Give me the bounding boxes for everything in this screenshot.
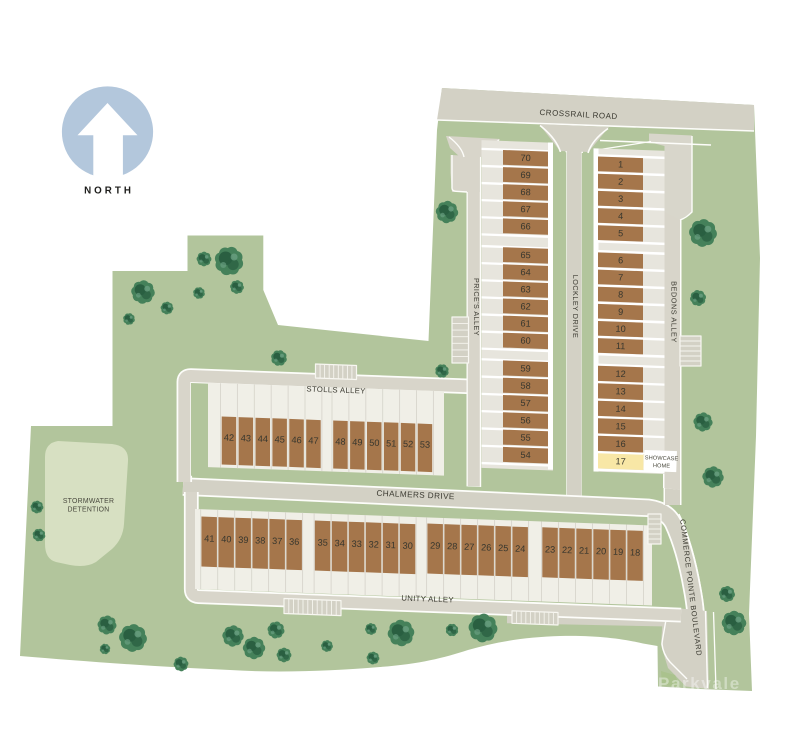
svg-text:25: 25 (498, 543, 509, 553)
svg-text:62: 62 (520, 301, 531, 311)
svg-text:BEDONS ALLEY: BEDONS ALLEY (670, 281, 679, 343)
svg-text:58: 58 (520, 381, 531, 391)
svg-text:31: 31 (385, 540, 396, 550)
svg-text:DETENTION: DETENTION (67, 507, 109, 514)
svg-text:68: 68 (520, 187, 531, 197)
svg-text:32: 32 (368, 539, 379, 549)
svg-text:53: 53 (420, 440, 431, 450)
svg-text:39: 39 (238, 535, 249, 545)
svg-text:26: 26 (481, 542, 492, 552)
svg-text:21: 21 (579, 546, 590, 556)
svg-text:PRICE'S ALLEY: PRICE'S ALLEY (472, 278, 481, 336)
svg-text:8: 8 (618, 290, 623, 300)
svg-text:42: 42 (224, 433, 235, 443)
svg-text:36: 36 (289, 537, 300, 547)
svg-text:37: 37 (272, 536, 283, 546)
svg-text:SHOWCASE: SHOWCASE (645, 455, 679, 462)
svg-text:61: 61 (520, 318, 531, 328)
svg-text:64: 64 (520, 267, 531, 277)
svg-text:41: 41 (204, 534, 215, 544)
svg-text:65: 65 (520, 250, 531, 260)
svg-text:Parkvale: Parkvale (658, 674, 741, 693)
svg-text:STORMWATER: STORMWATER (63, 498, 114, 505)
svg-text:3: 3 (618, 194, 623, 204)
svg-text:69: 69 (520, 170, 531, 180)
svg-text:9: 9 (618, 307, 623, 317)
svg-text:24: 24 (515, 544, 526, 554)
svg-text:NORTH: NORTH (84, 186, 134, 197)
svg-text:10: 10 (615, 324, 626, 334)
svg-text:40: 40 (221, 534, 232, 544)
svg-text:5: 5 (618, 228, 623, 238)
svg-text:16: 16 (615, 439, 626, 449)
svg-text:6: 6 (618, 255, 623, 265)
svg-text:52: 52 (403, 439, 414, 449)
svg-text:34: 34 (334, 538, 345, 548)
svg-text:63: 63 (520, 284, 531, 294)
svg-text:56: 56 (520, 415, 531, 425)
svg-text:70: 70 (520, 153, 531, 163)
svg-text:4: 4 (618, 211, 623, 221)
svg-text:54: 54 (520, 450, 531, 460)
svg-text:23: 23 (545, 544, 556, 554)
svg-text:49: 49 (352, 437, 363, 447)
svg-text:14: 14 (615, 404, 626, 414)
svg-text:17: 17 (615, 456, 626, 466)
svg-text:22: 22 (562, 545, 573, 555)
svg-text:66: 66 (520, 221, 531, 231)
svg-text:7: 7 (618, 272, 623, 282)
svg-text:LOCKLEY DRIVE: LOCKLEY DRIVE (571, 275, 580, 339)
svg-text:20: 20 (596, 546, 607, 556)
svg-text:57: 57 (520, 398, 531, 408)
svg-text:30: 30 (402, 541, 413, 551)
svg-text:44: 44 (258, 434, 269, 444)
svg-text:35: 35 (317, 538, 328, 548)
svg-text:55: 55 (520, 433, 531, 443)
svg-text:HOME: HOME (653, 463, 671, 470)
svg-text:48: 48 (335, 437, 346, 447)
svg-text:1: 1 (618, 159, 623, 169)
svg-text:13: 13 (615, 386, 626, 396)
svg-text:12: 12 (615, 369, 626, 379)
svg-text:43: 43 (241, 433, 252, 443)
svg-text:19: 19 (613, 547, 624, 557)
svg-text:51: 51 (386, 438, 397, 448)
svg-text:47: 47 (308, 436, 319, 446)
svg-text:60: 60 (520, 336, 531, 346)
svg-text:59: 59 (520, 363, 531, 373)
svg-text:11: 11 (616, 341, 626, 351)
svg-text:38: 38 (255, 535, 266, 545)
svg-text:27: 27 (464, 542, 475, 552)
svg-text:15: 15 (615, 421, 626, 431)
svg-text:29: 29 (430, 541, 441, 551)
svg-text:18: 18 (630, 547, 641, 557)
svg-text:50: 50 (369, 438, 380, 448)
svg-text:45: 45 (274, 434, 285, 444)
svg-text:2: 2 (618, 177, 623, 187)
svg-text:67: 67 (520, 204, 531, 214)
svg-text:33: 33 (351, 539, 362, 549)
svg-text:28: 28 (447, 541, 458, 551)
svg-text:46: 46 (291, 435, 302, 445)
